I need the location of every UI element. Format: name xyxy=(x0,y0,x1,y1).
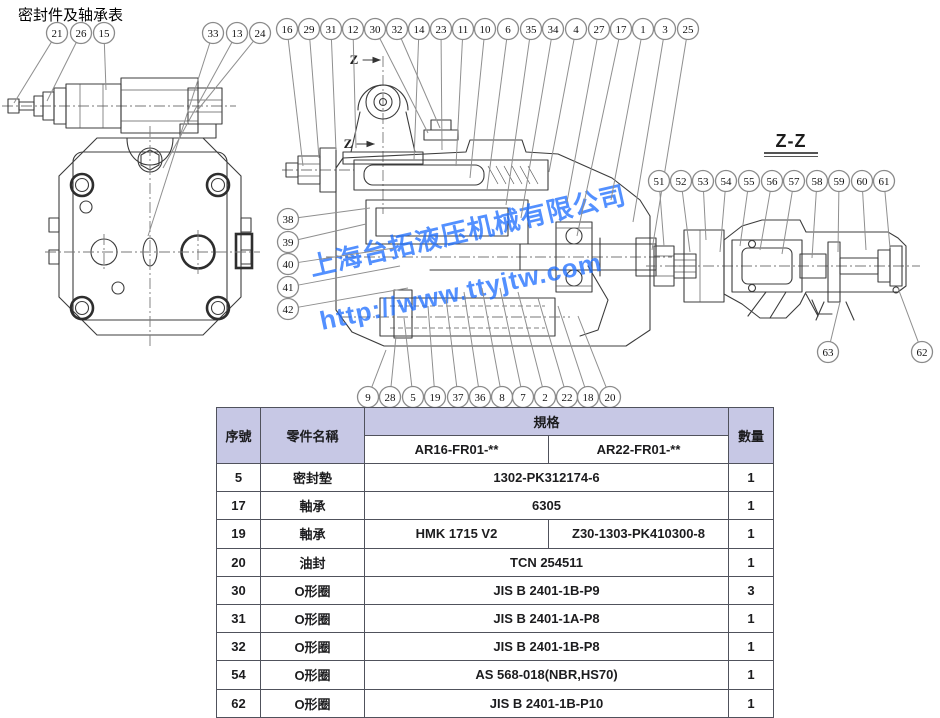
svg-text:9: 9 xyxy=(365,392,371,404)
svg-text:53: 53 xyxy=(698,176,710,188)
table-cell: 1 xyxy=(729,520,774,548)
svg-text:21: 21 xyxy=(52,28,63,40)
svg-text:61: 61 xyxy=(879,176,890,188)
part-balloon-25: 25 xyxy=(652,19,699,251)
svg-text:22: 22 xyxy=(562,392,573,404)
svg-text:37: 37 xyxy=(453,392,465,404)
svg-text:11: 11 xyxy=(458,24,469,36)
table-cell: 3 xyxy=(729,576,774,604)
svg-text:26: 26 xyxy=(76,28,88,40)
part-balloon-15: 15 xyxy=(94,23,115,91)
svg-text:27: 27 xyxy=(594,24,606,36)
part-balloon-31: 31 xyxy=(321,19,342,151)
svg-text:36: 36 xyxy=(475,392,487,404)
table-cell: 20 xyxy=(217,548,261,576)
header-name: 零件名稱 xyxy=(261,408,365,464)
svg-text:40: 40 xyxy=(283,259,295,271)
table-row: 17軸承63051 xyxy=(217,492,774,520)
table-cell: O形圈 xyxy=(261,604,365,632)
zz-label: Z-Z xyxy=(776,131,807,151)
table-row: 54O形圈AS 568-018(NBR,HS70)1 xyxy=(217,661,774,689)
svg-text:55: 55 xyxy=(744,176,756,188)
part-balloon-36: 36 xyxy=(464,292,491,408)
table-row: 32O形圈JIS B 2401-1B-P81 xyxy=(217,633,774,661)
part-balloon-6: 6 xyxy=(487,19,519,191)
part-balloon-4: 4 xyxy=(549,19,587,173)
table-row: 31O形圈JIS B 2401-1A-P81 xyxy=(217,604,774,632)
svg-text:57: 57 xyxy=(789,176,801,188)
header-qty: 數量 xyxy=(729,408,774,464)
table-cell: TCN 254511 xyxy=(365,548,729,576)
table-cell: 1 xyxy=(729,548,774,576)
svg-text:12: 12 xyxy=(348,24,359,36)
svg-text:25: 25 xyxy=(683,24,695,36)
part-balloon-55: 55 xyxy=(739,171,760,247)
svg-text:7: 7 xyxy=(520,392,526,404)
svg-text:28: 28 xyxy=(385,392,397,404)
svg-text:14: 14 xyxy=(414,24,426,36)
header-spec-ar16: AR16-FR01-** xyxy=(365,436,549,464)
table-cell: JIS B 2401-1B-P9 xyxy=(365,576,729,604)
part-balloon-16: 16 xyxy=(277,19,304,167)
watermark: 上海台拓液压机械有限公司 http://www.ttyjtw.com xyxy=(307,180,629,336)
svg-text:8: 8 xyxy=(499,392,505,404)
table-cell: 5 xyxy=(217,464,261,492)
svg-text:32: 32 xyxy=(392,24,403,36)
svg-text:60: 60 xyxy=(857,176,869,188)
svg-text:63: 63 xyxy=(823,347,835,359)
svg-text:62: 62 xyxy=(917,347,928,359)
table-cell: 19 xyxy=(217,520,261,548)
table-cell: 1 xyxy=(729,464,774,492)
compensator-valve xyxy=(8,78,222,138)
table-cell: 1302-PK312174-6 xyxy=(365,464,729,492)
part-balloon-33: 33 xyxy=(148,23,224,237)
svg-text:34: 34 xyxy=(548,24,560,36)
table-cell: JIS B 2401-1B-P10 xyxy=(365,689,729,717)
part-balloon-52: 52 xyxy=(671,171,692,253)
table-cell: 1 xyxy=(729,492,774,520)
svg-text:31: 31 xyxy=(326,24,337,36)
table-cell: O形圈 xyxy=(261,576,365,604)
svg-text:39: 39 xyxy=(283,237,295,249)
part-balloon-62: 62 xyxy=(898,288,933,363)
table-cell: Z30-1303-PK410300-8 xyxy=(549,520,729,548)
table-row: 30O形圈JIS B 2401-1B-P93 xyxy=(217,576,774,604)
svg-text:6: 6 xyxy=(505,24,511,36)
table-cell: O形圈 xyxy=(261,689,365,717)
table-cell: 1 xyxy=(729,604,774,632)
part-balloon-28: 28 xyxy=(380,336,401,408)
part-balloon-61: 61 xyxy=(874,171,895,249)
header-spec: 規格 xyxy=(365,408,729,436)
table-cell: AS 568-018(NBR,HS70) xyxy=(365,661,729,689)
svg-text:2: 2 xyxy=(542,392,548,404)
svg-text:35: 35 xyxy=(526,24,538,36)
svg-text:58: 58 xyxy=(812,176,824,188)
table-cell: 密封墊 xyxy=(261,464,365,492)
svg-text:54: 54 xyxy=(721,176,733,188)
svg-text:10: 10 xyxy=(480,24,492,36)
part-balloon-63: 63 xyxy=(818,302,841,363)
part-balloon-60: 60 xyxy=(852,171,873,251)
table-cell: O形圈 xyxy=(261,661,365,689)
part-balloon-56: 56 xyxy=(760,171,783,251)
pump-front-view xyxy=(2,78,260,348)
svg-text:17: 17 xyxy=(616,24,628,36)
part-balloon-21: 21 xyxy=(14,23,68,104)
part-balloon-58: 58 xyxy=(807,171,828,259)
part-balloon-11: 11 xyxy=(453,19,474,167)
table-cell: 1 xyxy=(729,661,774,689)
svg-text:1: 1 xyxy=(640,24,646,36)
parts-table: 序號 零件名稱 規格 數量 AR16-FR01-** AR22-FR01-** … xyxy=(216,407,774,718)
svg-text:23: 23 xyxy=(436,24,448,36)
part-balloon-5: 5 xyxy=(403,318,424,408)
table-cell: 30 xyxy=(217,576,261,604)
svg-text:15: 15 xyxy=(99,28,111,40)
part-balloon-12: 12 xyxy=(343,19,364,149)
svg-text:3: 3 xyxy=(662,24,668,36)
header-spec-ar22: AR22-FR01-** xyxy=(549,436,729,464)
svg-text:4: 4 xyxy=(573,24,579,36)
table-row: 20油封TCN 2545111 xyxy=(217,548,774,576)
header-seq: 序號 xyxy=(217,408,261,464)
part-balloon-35: 35 xyxy=(506,19,542,206)
table-cell: JIS B 2401-1A-P8 xyxy=(365,604,729,632)
table-cell: O形圈 xyxy=(261,633,365,661)
svg-text:20: 20 xyxy=(605,392,617,404)
part-balloon-59: 59 xyxy=(829,171,850,253)
table-row: 19軸承HMK 1715 V2Z30-1303-PK410300-81 xyxy=(217,520,774,548)
part-balloon-37: 37 xyxy=(446,298,469,408)
svg-text:13: 13 xyxy=(232,28,244,40)
table-cell: 1 xyxy=(729,633,774,661)
svg-text:59: 59 xyxy=(834,176,846,188)
table-cell: 6305 xyxy=(365,492,729,520)
svg-text:56: 56 xyxy=(767,176,779,188)
part-balloon-34: 34 xyxy=(521,19,564,219)
table-cell: HMK 1715 V2 xyxy=(365,520,549,548)
svg-text:5: 5 xyxy=(410,392,416,404)
table-cell: 軸承 xyxy=(261,492,365,520)
balloon-layer: 2126153313241629311230321423111063534427… xyxy=(14,19,933,408)
svg-text:52: 52 xyxy=(676,176,687,188)
svg-text:16: 16 xyxy=(282,24,294,36)
part-balloon-29: 29 xyxy=(299,19,320,159)
table-cell: 軸承 xyxy=(261,520,365,548)
table-cell: 17 xyxy=(217,492,261,520)
svg-text:51: 51 xyxy=(654,176,665,188)
table-cell: 油封 xyxy=(261,548,365,576)
svg-text:24: 24 xyxy=(255,28,267,40)
table-cell: 31 xyxy=(217,604,261,632)
svg-text:19: 19 xyxy=(430,392,442,404)
table-cell: JIS B 2401-1B-P8 xyxy=(365,633,729,661)
svg-text:18: 18 xyxy=(583,392,595,404)
table-cell: 62 xyxy=(217,689,261,717)
table-cell: 1 xyxy=(729,689,774,717)
table-row: 62O形圈JIS B 2401-1B-P101 xyxy=(217,689,774,717)
svg-text:33: 33 xyxy=(208,28,220,40)
part-balloon-57: 57 xyxy=(782,171,805,255)
svg-text:29: 29 xyxy=(304,24,316,36)
table-cell: 54 xyxy=(217,661,261,689)
part-balloon-19: 19 xyxy=(425,306,446,408)
svg-text:30: 30 xyxy=(370,24,382,36)
part-balloon-13: 13 xyxy=(163,23,248,169)
table-cell: 32 xyxy=(217,633,261,661)
svg-text:42: 42 xyxy=(283,304,294,316)
table-row: 5密封墊1302-PK312174-61 xyxy=(217,464,774,492)
svg-text:38: 38 xyxy=(283,214,295,226)
svg-text:41: 41 xyxy=(283,282,294,294)
